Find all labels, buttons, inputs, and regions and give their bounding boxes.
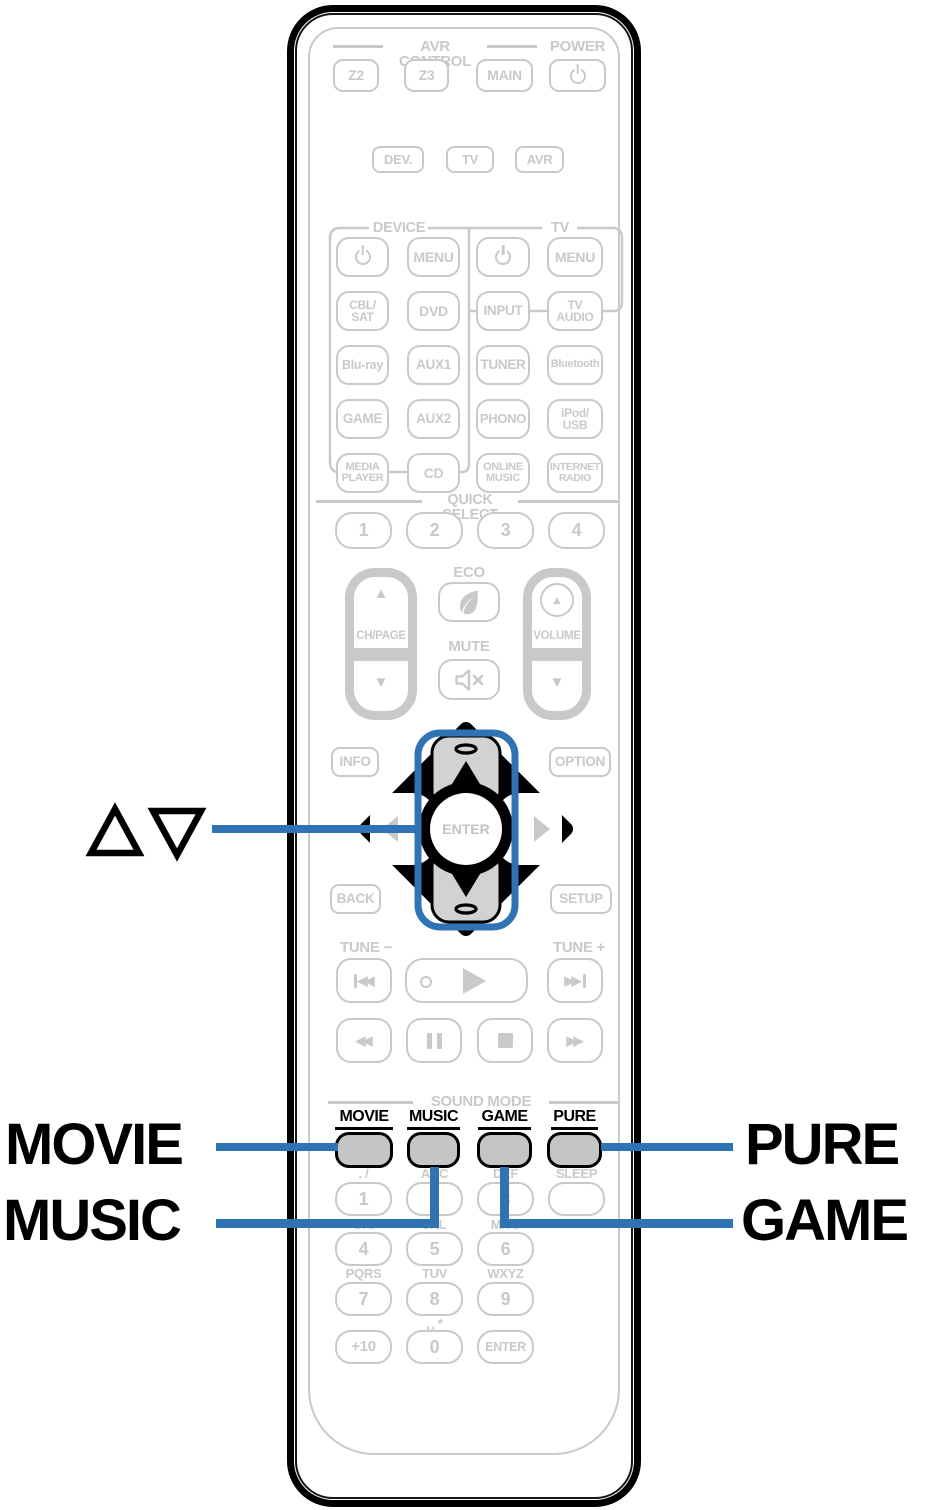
keypad-letters-tuv: TUV: [406, 1267, 463, 1280]
volume-down-icon[interactable]: ▼: [532, 675, 582, 690]
digit-5-button[interactable]: 5: [406, 1232, 463, 1266]
mode-dev-button[interactable]: DEV.: [372, 146, 424, 173]
bluetooth-button[interactable]: Bluetooth: [547, 345, 603, 385]
skip-forward-button[interactable]: ▶▶: [547, 958, 603, 1003]
game-sound-button[interactable]: [477, 1132, 532, 1168]
header-line: [487, 45, 537, 48]
keypad-letters-1: . /: [335, 1167, 392, 1180]
header-line: [549, 1101, 620, 1104]
sleep-button[interactable]: [548, 1182, 605, 1216]
tv-power-button[interactable]: [476, 237, 530, 277]
digit-1-button[interactable]: 1: [335, 1182, 392, 1216]
device-menu-button[interactable]: MENU: [407, 237, 460, 277]
digit-4-button[interactable]: 4: [335, 1232, 392, 1266]
cursor-updown-callout: [85, 800, 207, 862]
eco-label: ECO: [441, 565, 497, 580]
header-line: [328, 1101, 413, 1104]
cbl-sat-button[interactable]: CBL/ SAT: [336, 291, 389, 331]
tv-header: TV: [544, 221, 576, 236]
keypad-space-asterisk-label: ␣ *: [406, 1317, 463, 1330]
power-icon: [570, 68, 586, 84]
mute-button[interactable]: [438, 659, 500, 700]
eco-button[interactable]: [438, 582, 500, 622]
mode-tv-button[interactable]: TV: [446, 146, 494, 173]
cursor-updown-callout-text: △▽: [0, 0, 1, 1]
header-line: [316, 500, 422, 503]
callout-line-movie: [216, 1143, 338, 1151]
power-icon: [495, 249, 511, 265]
keypad-enter-button[interactable]: ENTER: [477, 1330, 534, 1364]
header-line: [518, 500, 620, 503]
callout-line-pure: [601, 1143, 733, 1151]
aux2-button[interactable]: AUX2: [407, 399, 460, 439]
pure-sound-button[interactable]: [547, 1132, 602, 1168]
rewind-button[interactable]: ◀◀: [336, 1018, 392, 1063]
stop-icon: [498, 1033, 513, 1048]
digit-7-button[interactable]: 7: [335, 1282, 392, 1316]
volume-rocker[interactable]: ▲ VOLUME ▼: [523, 568, 591, 720]
quick-select-2-button[interactable]: 2: [406, 512, 463, 549]
plus10-button[interactable]: +10: [335, 1330, 392, 1364]
aux1-button[interactable]: AUX1: [407, 345, 460, 385]
ch-page-label: CH/PAGE: [347, 631, 415, 643]
callout-line-game: [501, 1219, 733, 1228]
channel-up-icon[interactable]: ▲: [354, 586, 408, 601]
input-button[interactable]: INPUT: [476, 291, 530, 331]
dvd-button[interactable]: DVD: [407, 291, 460, 331]
music-sound-button[interactable]: [407, 1132, 460, 1168]
game-source-button[interactable]: GAME: [336, 399, 389, 439]
up-triangle-icon: [91, 809, 139, 853]
online-music-button[interactable]: ONLINE MUSIC: [476, 453, 530, 493]
fast-forward-button[interactable]: ▶▶: [547, 1018, 603, 1063]
movie-button-label: MOVIE: [335, 1109, 393, 1130]
ch-page-rocker[interactable]: ▲ CH/PAGE ▼: [345, 568, 417, 720]
skip-forward-icon: [583, 974, 586, 988]
enter-button[interactable]: ENTER: [419, 782, 513, 876]
movie-sound-button[interactable]: [335, 1132, 393, 1168]
manual-remote-diagram: AVR CONTROL POWER Z2 Z3 MAIN DEV. TV AVR…: [0, 0, 931, 1510]
enter-button-label: ENTER: [442, 821, 489, 837]
pause-icon: [427, 1033, 432, 1049]
callout-line-cursor: [212, 825, 421, 833]
game-button-label: GAME: [478, 1109, 531, 1130]
zone2-button[interactable]: Z2: [333, 59, 379, 92]
blu-ray-button[interactable]: Blu-ray: [336, 345, 389, 385]
play-icon: [463, 968, 486, 994]
channel-down-icon[interactable]: ▼: [354, 675, 408, 690]
power-button[interactable]: [549, 59, 606, 92]
header-line: [333, 45, 383, 48]
keypad-letters-pqrs: PQRS: [335, 1267, 392, 1280]
skip-back-icon: [354, 974, 357, 988]
callout-music: MUSIC: [3, 1192, 180, 1250]
skip-back-button[interactable]: ◀◀: [336, 958, 392, 1003]
callout-movie: MOVIE: [5, 1116, 182, 1174]
power-icon: [355, 249, 371, 265]
volume-up-icon[interactable]: ▲: [540, 583, 574, 617]
mode-avr-button[interactable]: AVR: [515, 146, 564, 173]
ipod-usb-button[interactable]: iPod/ USB: [547, 399, 603, 439]
sleep-label: SLEEP: [548, 1167, 605, 1180]
play-button[interactable]: [405, 958, 528, 1003]
rocker-divider: [354, 648, 408, 661]
pure-button-label: PURE: [551, 1109, 598, 1130]
cd-button[interactable]: CD: [407, 453, 460, 493]
callout-line-music: [216, 1219, 439, 1228]
media-player-button[interactable]: MEDIA PLAYER: [336, 453, 389, 493]
quick-select-4-button[interactable]: 4: [548, 512, 605, 549]
leaf-icon: [457, 589, 481, 616]
device-power-button[interactable]: [336, 237, 389, 277]
tv-menu-button[interactable]: MENU: [547, 237, 603, 277]
phono-button[interactable]: PHONO: [476, 399, 530, 439]
power-header: POWER: [549, 39, 606, 54]
digit-8-button[interactable]: 8: [406, 1282, 463, 1316]
mute-label: MUTE: [441, 639, 497, 654]
digit-0-button[interactable]: 0: [406, 1330, 463, 1364]
quick-select-3-button[interactable]: 3: [477, 512, 534, 549]
record-dot-icon: [420, 976, 432, 988]
speaker-mute-icon: [454, 668, 484, 692]
stop-button[interactable]: [477, 1018, 533, 1063]
down-triangle-icon: [153, 811, 201, 855]
callout-game: GAME: [741, 1192, 907, 1250]
music-button-label: MUSIC: [407, 1109, 460, 1130]
device-header: DEVICE: [371, 221, 427, 236]
volume-label: VOLUME: [525, 631, 589, 643]
pause-button[interactable]: [406, 1018, 462, 1063]
sound-mode-header: SOUND MODE: [415, 1094, 547, 1109]
zone3-button[interactable]: Z3: [404, 59, 449, 92]
digit-6-button[interactable]: 6: [477, 1232, 534, 1266]
digit-9-button[interactable]: 9: [477, 1282, 534, 1316]
quick-select-1-button[interactable]: 1: [335, 512, 392, 549]
keypad-letters-wxyz: WXYZ: [477, 1267, 534, 1280]
rocker-divider: [532, 648, 582, 661]
internet-radio-button[interactable]: INTERNET RADIO: [547, 453, 603, 493]
main-zone-button[interactable]: MAIN: [476, 59, 533, 92]
tv-audio-button[interactable]: TV AUDIO: [547, 291, 603, 331]
fast-forward-icon: ▶▶: [567, 1034, 584, 1047]
rewind-icon: ◀◀: [356, 1034, 373, 1047]
tuner-button[interactable]: TUNER: [476, 345, 530, 385]
callout-pure: PURE: [745, 1116, 898, 1174]
